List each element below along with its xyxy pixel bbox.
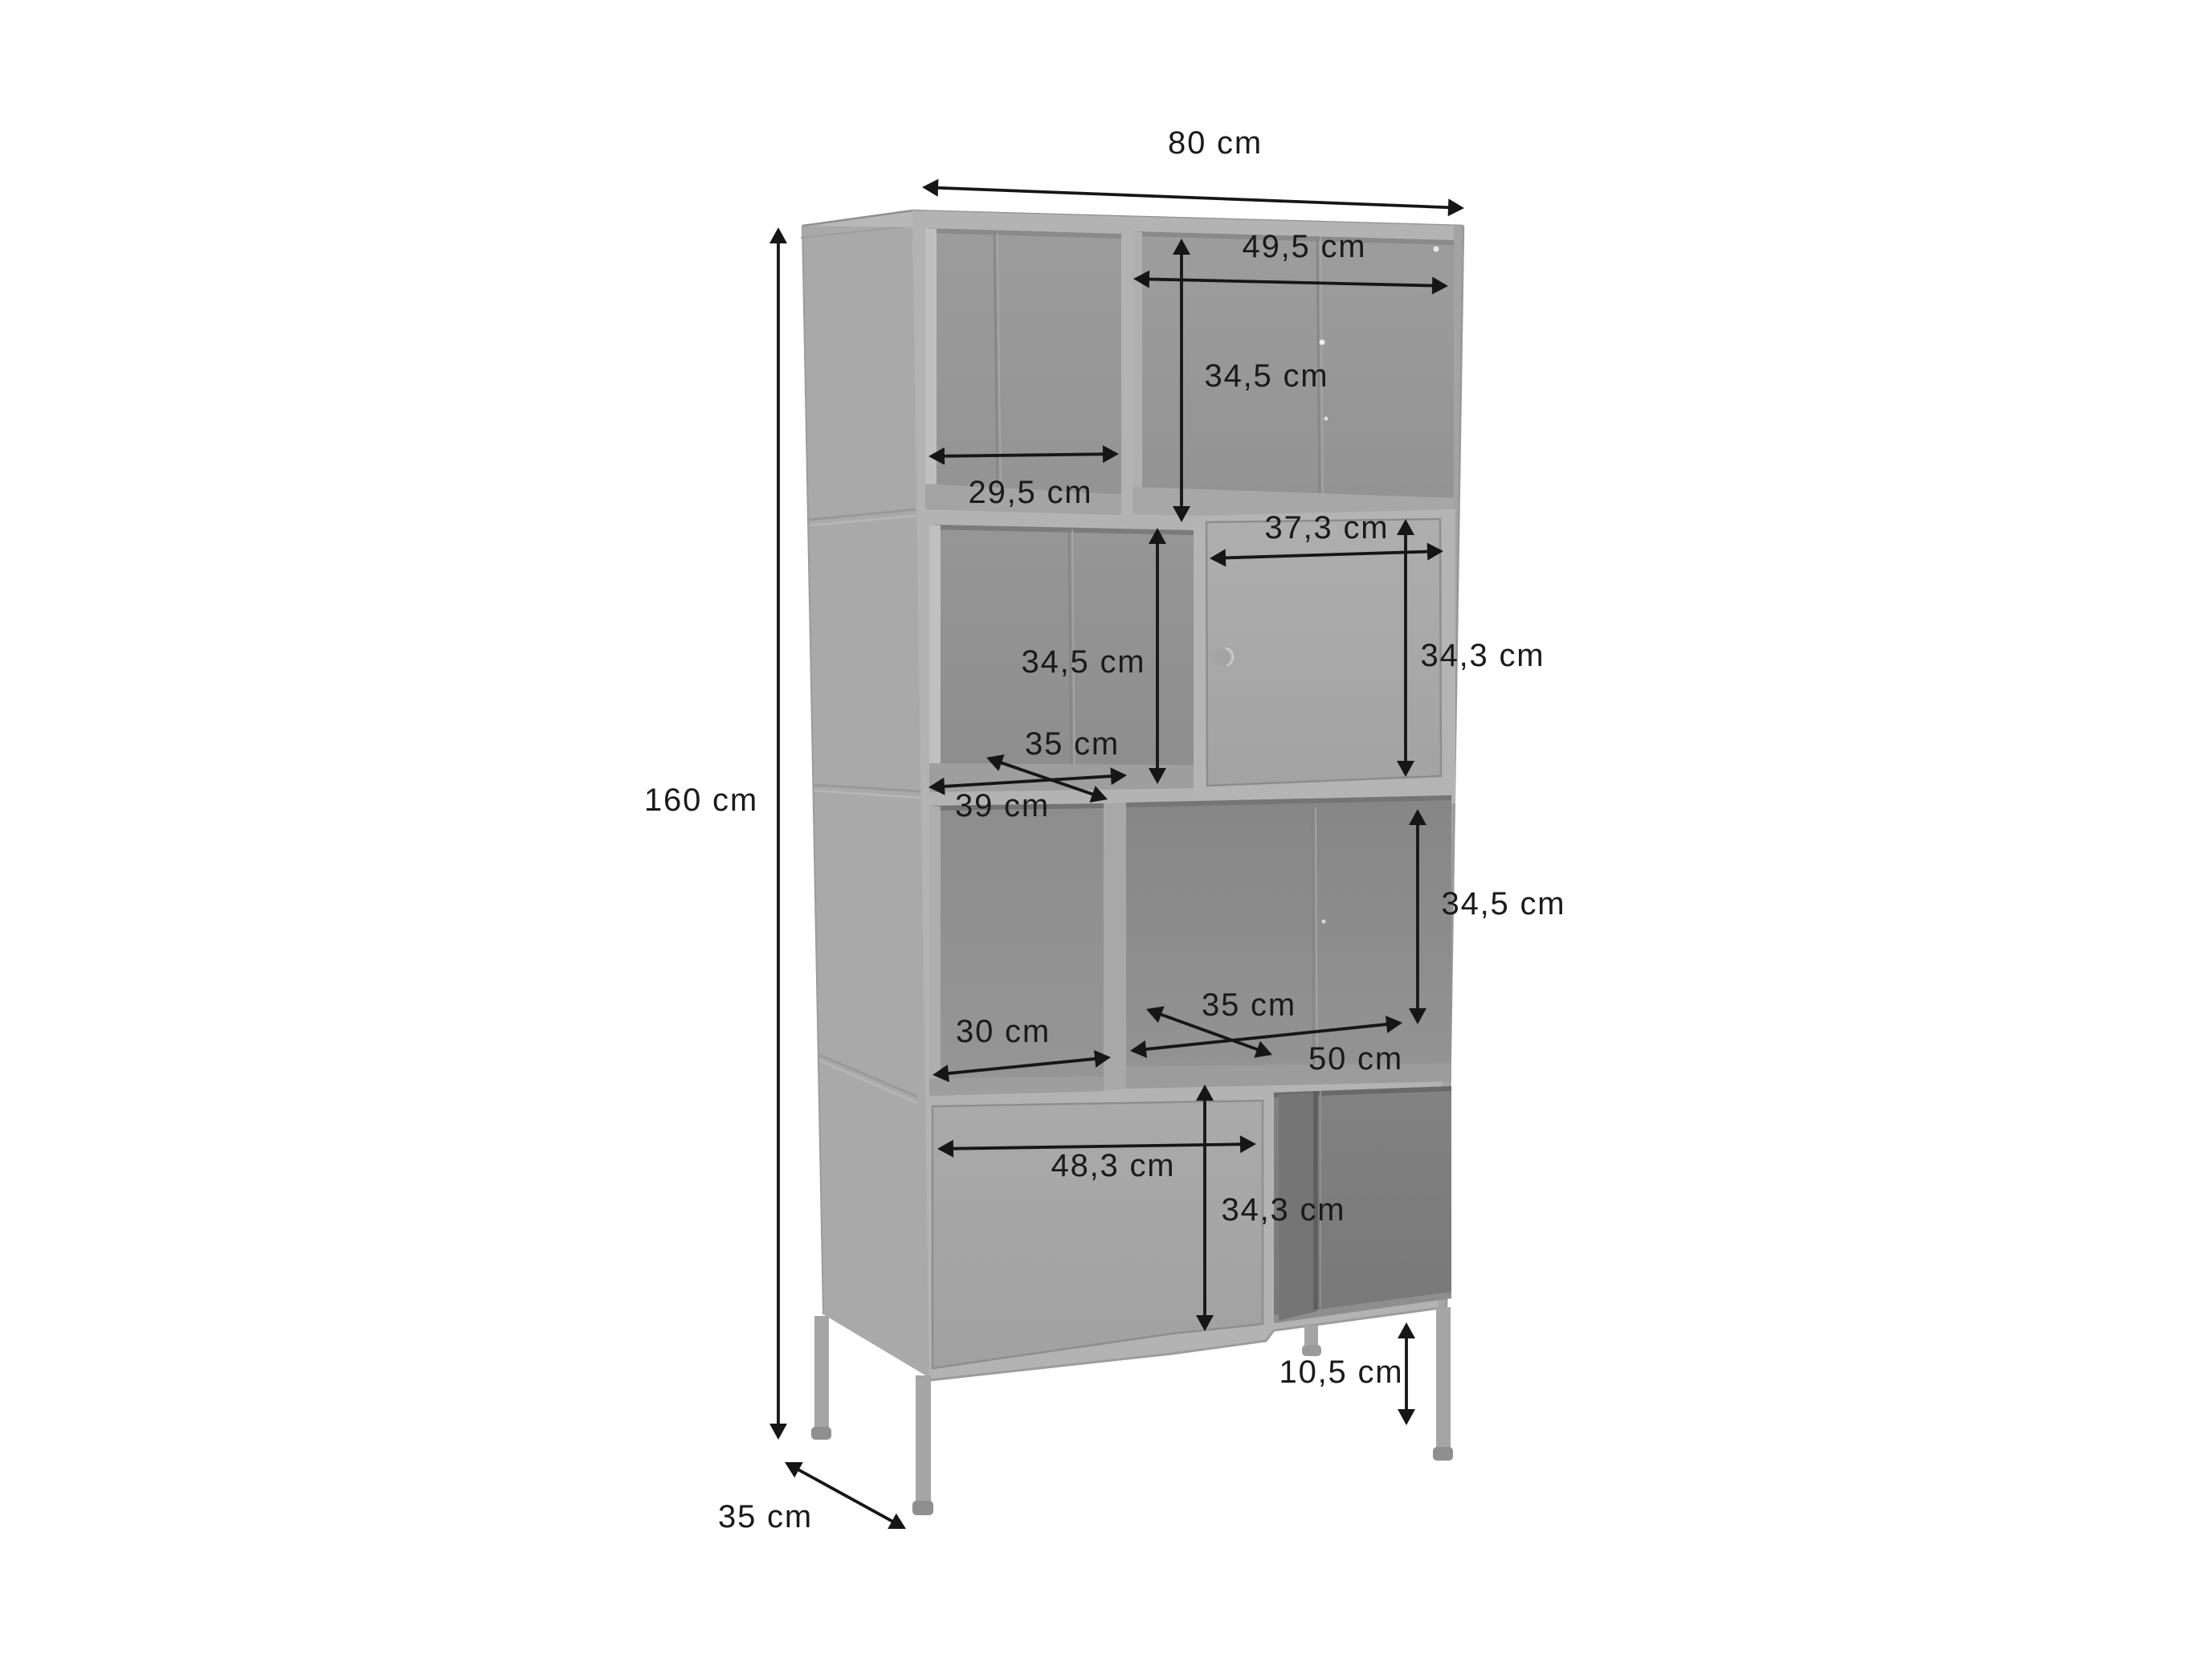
svg-text:30 cm: 30 cm bbox=[956, 1014, 1051, 1049]
svg-text:50 cm: 50 cm bbox=[1308, 1041, 1403, 1077]
svg-text:35 cm: 35 cm bbox=[718, 1499, 813, 1534]
svg-text:49,5 cm: 49,5 cm bbox=[1243, 229, 1367, 264]
svg-text:34,5 cm: 34,5 cm bbox=[1205, 358, 1329, 394]
svg-text:39 cm: 39 cm bbox=[955, 788, 1050, 823]
svg-text:10,5 cm: 10,5 cm bbox=[1279, 1355, 1404, 1390]
svg-text:80 cm: 80 cm bbox=[1168, 125, 1263, 161]
svg-text:34,5 cm: 34,5 cm bbox=[1442, 886, 1566, 921]
svg-text:34,3 cm: 34,3 cm bbox=[1421, 638, 1545, 673]
svg-text:34,5 cm: 34,5 cm bbox=[1022, 644, 1146, 680]
svg-text:160 cm: 160 cm bbox=[644, 783, 758, 818]
svg-text:35 cm: 35 cm bbox=[1202, 987, 1296, 1023]
svg-text:34,3 cm: 34,3 cm bbox=[1222, 1192, 1346, 1228]
svg-text:48,3 cm: 48,3 cm bbox=[1051, 1148, 1176, 1183]
svg-text:37,3 cm: 37,3 cm bbox=[1265, 510, 1390, 546]
svg-text:35 cm: 35 cm bbox=[1025, 726, 1120, 762]
svg-text:29,5 cm: 29,5 cm bbox=[969, 475, 1093, 510]
